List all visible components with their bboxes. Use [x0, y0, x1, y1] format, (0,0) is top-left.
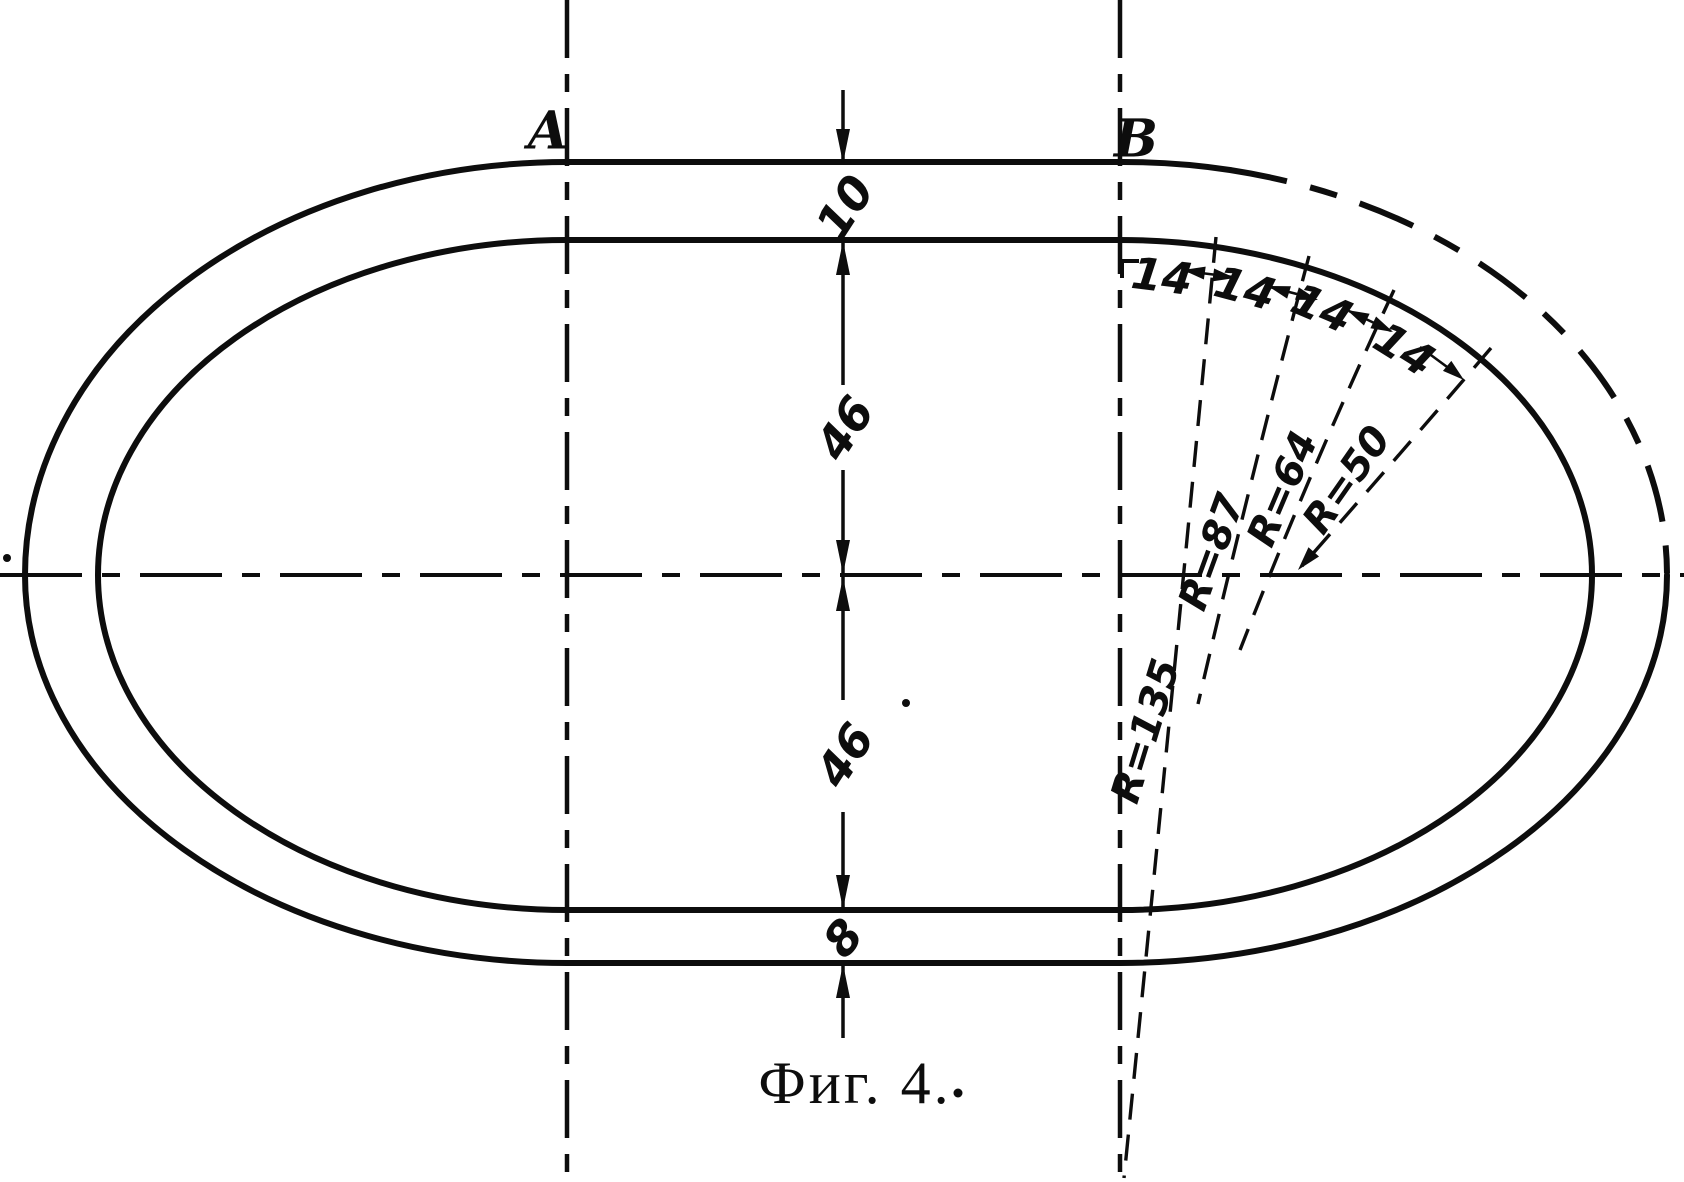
outer-boundary-solid-top-left [25, 162, 1230, 575]
ink-speck [954, 1089, 963, 1098]
dimension-track-width-top: 10 [805, 165, 885, 248]
radius-label-r135: R=135 [1102, 654, 1189, 809]
arc-segment-label-2: 14 [1209, 256, 1281, 321]
ink-speck [902, 699, 910, 707]
figure-4-drawing: A B 10 46 46 8 14 14 14 14 R=135 R=87 R=… [0, 0, 1684, 1182]
dimension-track-width-bottom: 8 [812, 908, 874, 967]
dimension-half-height-lower: 46 [804, 713, 885, 797]
arrowhead-up-centerline [836, 577, 850, 611]
arrowhead-up-outer-bottom [836, 964, 850, 998]
dimension-half-height-upper: 46 [804, 386, 885, 470]
arrowhead-down-centerline [836, 540, 850, 574]
arrowhead-down-outer-top [836, 129, 850, 163]
ink-speck [3, 554, 11, 562]
arc-segment-label-1: 14 [1129, 248, 1196, 306]
radius-label-r87: R=87 [1170, 488, 1254, 617]
tangent-point-label-b: B [1112, 109, 1158, 170]
tangent-point-label-a: A [523, 101, 568, 162]
arrowhead-down-inner-bottom [836, 875, 850, 909]
figure-caption: Фиг. 4. [758, 1050, 951, 1116]
